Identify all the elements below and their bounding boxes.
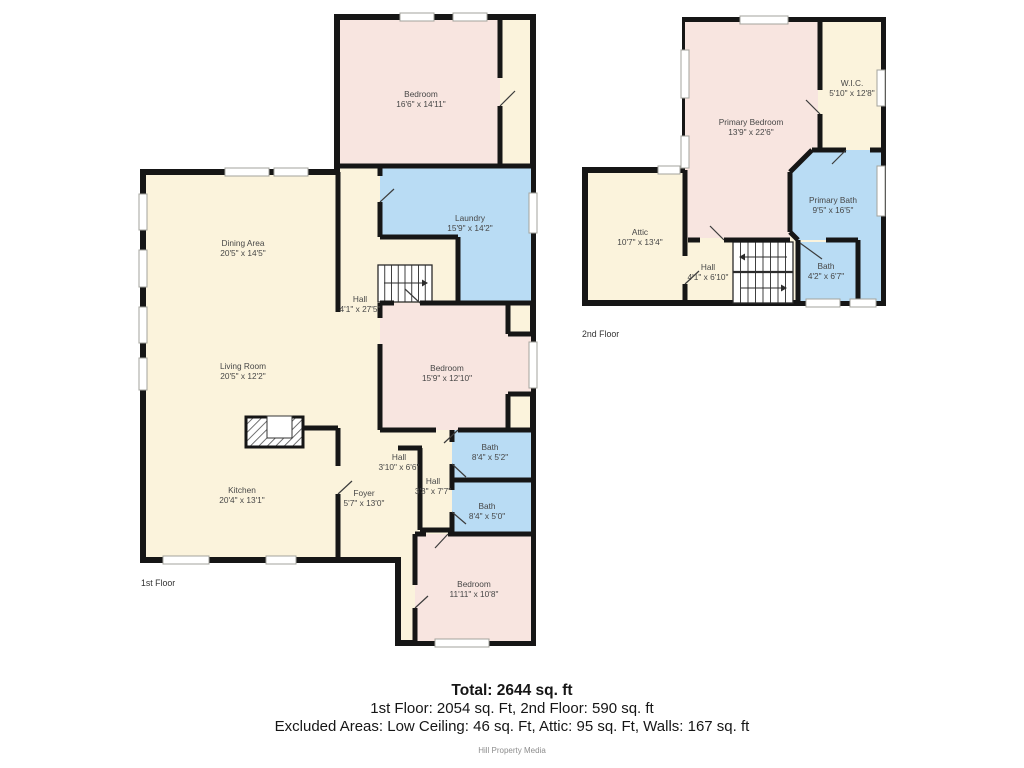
floor-title-2nd-floor: 2nd Floor <box>582 329 619 339</box>
floor-areas-text: 1st Floor: 2054 sq. Ft, 2nd Floor: 590 s… <box>0 700 1024 718</box>
window <box>225 168 269 176</box>
floorplan-canvas: Bedroom16'6" x 14'11"Laundry15'9" x 14'2… <box>0 0 1024 768</box>
window <box>850 299 876 307</box>
floor-2nd-floor: Primary Bedroom13'9" x 22'6"W.I.C.5'10" … <box>582 16 885 339</box>
window <box>877 70 885 106</box>
floor-1st-floor: Bedroom16'6" x 14'11"Laundry15'9" x 14'2… <box>139 13 537 647</box>
window <box>453 13 487 21</box>
room-label-dining-area: Dining Area20'5" x 14'5" <box>220 238 266 258</box>
window <box>806 299 840 307</box>
window <box>139 250 147 287</box>
window <box>435 639 489 647</box>
window <box>163 556 209 564</box>
excluded-areas-text: Excluded Areas: Low Ceiling: 46 sq. Ft, … <box>0 718 1024 736</box>
room-label-primary-bedroom: Primary Bedroom13'9" x 22'6" <box>719 117 784 137</box>
window <box>139 358 147 390</box>
fireplace-hearth <box>267 416 292 438</box>
credit-text: Hill Property Media <box>0 746 1024 755</box>
window <box>266 556 296 564</box>
staircase <box>378 265 432 302</box>
area-summary: Total: 2644 sq. ft 1st Floor: 2054 sq. F… <box>0 681 1024 755</box>
window <box>658 166 680 174</box>
window <box>529 342 537 388</box>
staircase <box>733 242 793 303</box>
room-label-living-room: Living Room20'5" x 12'2" <box>220 361 266 381</box>
room-label-primary-bath: Primary Bath9'5" x 16'5" <box>809 195 857 215</box>
window <box>139 194 147 230</box>
window <box>740 16 788 24</box>
total-area-text: Total: 2644 sq. ft <box>0 681 1024 700</box>
window <box>681 136 689 168</box>
window <box>681 50 689 98</box>
window <box>400 13 434 21</box>
floor-title-1st-floor: 1st Floor <box>141 578 175 588</box>
window <box>274 168 308 176</box>
window <box>139 307 147 343</box>
window <box>877 166 885 216</box>
window <box>529 193 537 233</box>
